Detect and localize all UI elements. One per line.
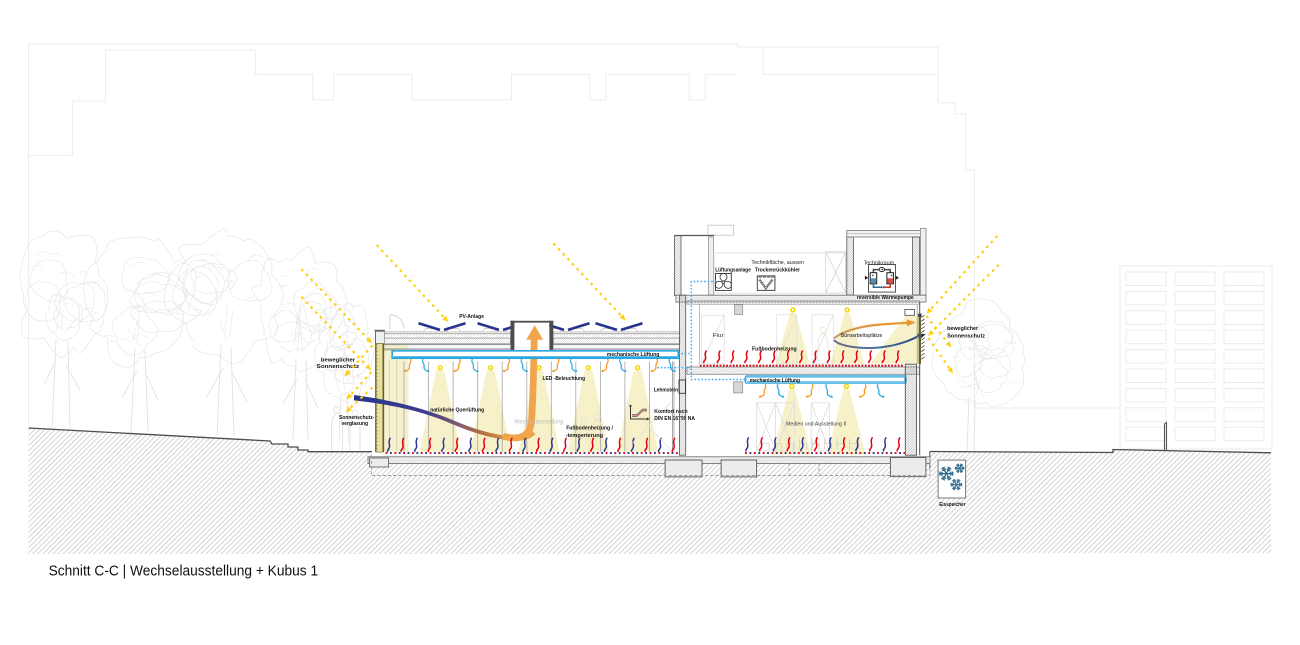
svg-text:Technikfläche, aussen: Technikfläche, aussen <box>751 260 804 266</box>
svg-text:Sonnenschutz-: Sonnenschutz- <box>339 415 374 421</box>
svg-text:-temperierung: -temperierung <box>566 433 604 439</box>
svg-text:Fußbodenheizung /: Fußbodenheizung / <box>566 426 613 432</box>
svg-text:PV-Anlage: PV-Anlage <box>459 314 484 320</box>
svg-text:Lüftungsanlage: Lüftungsanlage <box>715 268 751 274</box>
svg-text:beweglicher: beweglicher <box>321 358 356 364</box>
svg-text:Büroarbeitsplätze: Büroarbeitsplätze <box>841 333 883 339</box>
svg-text:Trockenrückkühler: Trockenrückkühler <box>755 268 801 274</box>
svg-text:Lehmstein: Lehmstein <box>654 387 679 393</box>
svg-text:mechanische Lüftung: mechanische Lüftung <box>750 378 801 384</box>
svg-text:Medien und Ausstellung II: Medien und Ausstellung II <box>786 421 847 427</box>
svg-text:Wechselausstellung: Wechselausstellung <box>515 419 564 426</box>
svg-text:verglasung: verglasung <box>342 421 369 427</box>
svg-text:reversible Wärmepumpe: reversible Wärmepumpe <box>857 295 914 301</box>
svg-text:Sonnenschutz: Sonnenschutz <box>947 334 985 340</box>
svg-text:beweglicher: beweglicher <box>947 326 979 332</box>
svg-text:mechanische Lüftung: mechanische Lüftung <box>607 352 660 358</box>
svg-text:natürliche Querlüftung: natürliche Querlüftung <box>430 407 484 413</box>
svg-text:Flur: Flur <box>713 333 724 339</box>
svg-text:LED -Beleuchtung: LED -Beleuchtung <box>543 376 586 382</box>
svg-text:DIN EN 16798 NA: DIN EN 16798 NA <box>654 416 695 422</box>
svg-text:Technikraum: Technikraum <box>864 260 895 266</box>
svg-text:Schnitt C-C | Wechselausstellu: Schnitt C-C | Wechselausstellung + Kubus… <box>49 563 319 579</box>
svg-text:Eisspeicher: Eisspeicher <box>939 502 966 508</box>
